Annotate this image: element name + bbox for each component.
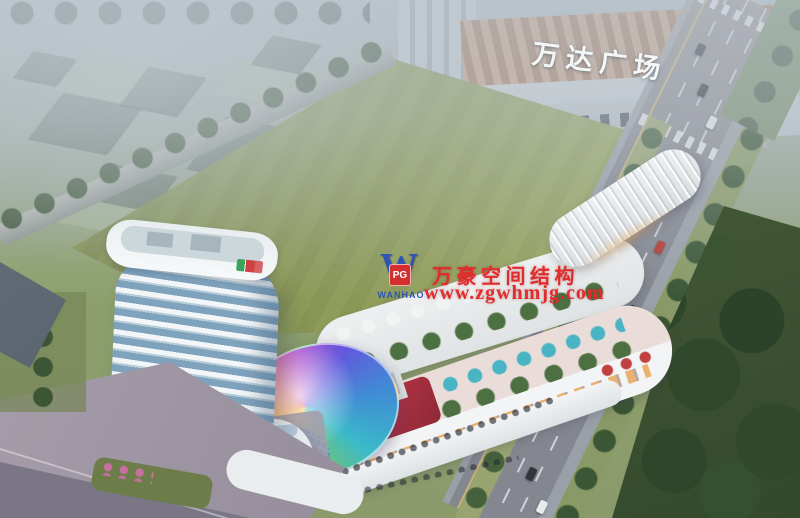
rooftop-structure <box>190 234 222 253</box>
tower-logo-chip <box>236 259 263 274</box>
distant-tree-row <box>0 0 370 28</box>
watermark-website: www.zgwhmjg.com <box>424 282 605 305</box>
flower-bed <box>99 461 155 484</box>
vehicle <box>535 499 548 514</box>
vehicle <box>705 115 718 130</box>
logo-badge: PG <box>389 264 411 286</box>
rooftop-structure <box>146 231 173 248</box>
aerial-rendering: 万达广场 W PG WANHAO 万豪空间结构 www.zgwhmjg.com <box>0 0 800 518</box>
vehicle <box>696 83 709 98</box>
logo-caption: WANHAO <box>372 290 430 300</box>
watermark: W PG WANHAO 万豪空间结构 www.zgwhmjg.com <box>372 252 572 312</box>
vehicle <box>694 43 706 57</box>
watermark-logo: W PG WANHAO <box>372 252 430 308</box>
vehicle <box>653 240 666 255</box>
